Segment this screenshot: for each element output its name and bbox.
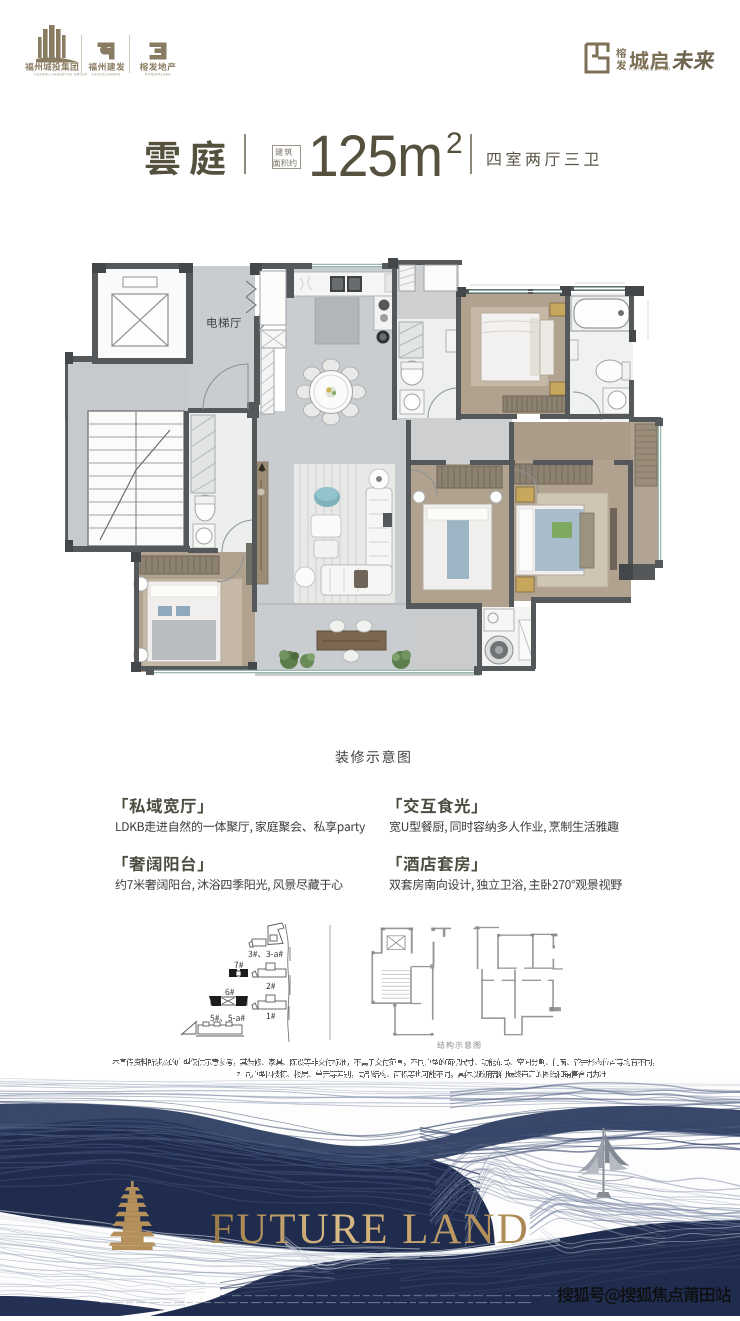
svg-text:FUZHOUJIANFA: FUZHOUJIANFA: [92, 73, 121, 77]
svg-text:RONGFALAND: RONGFALAND: [145, 73, 171, 77]
svg-text:FUTURELAND: FUTURELAND: [629, 67, 672, 72]
svg-text:FUZHOU CHENGTOU GROUP: FUZHOU CHENGTOU GROUP: [34, 73, 87, 77]
